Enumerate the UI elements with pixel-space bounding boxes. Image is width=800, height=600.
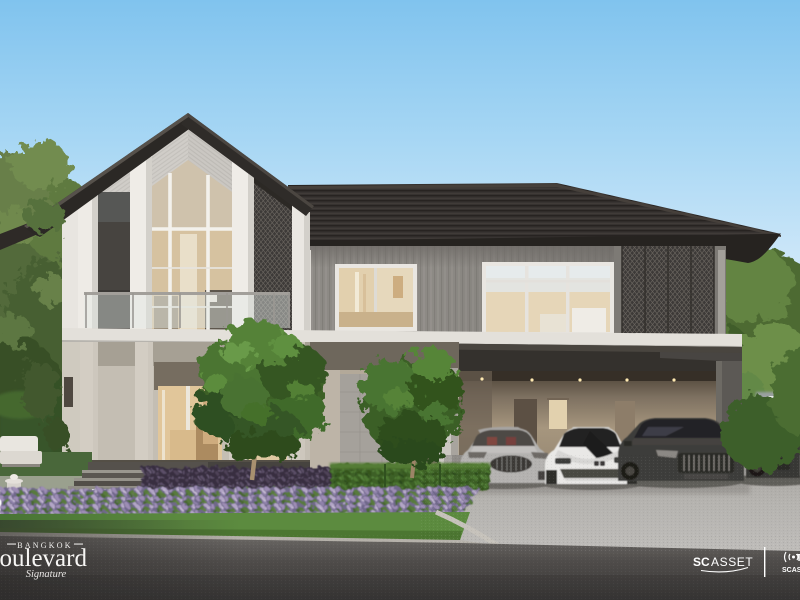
svg-text:boulevard: boulevard [0, 545, 87, 572]
svg-text:T: T [796, 553, 800, 564]
svg-text:SCASS: SCASS [782, 567, 800, 574]
svg-text:ASSET: ASSET [711, 555, 753, 569]
svg-text:SC: SC [693, 555, 710, 569]
svg-text:Signature: Signature [26, 569, 67, 580]
